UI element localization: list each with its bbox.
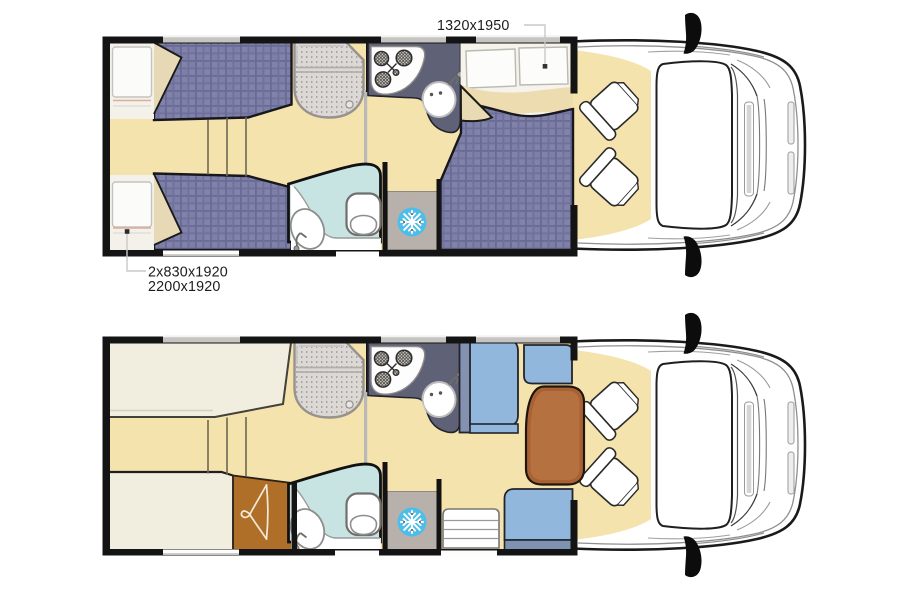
svg-text:2200x1920: 2200x1920 bbox=[148, 279, 221, 295]
svg-text:1320x1950: 1320x1950 bbox=[437, 18, 510, 34]
